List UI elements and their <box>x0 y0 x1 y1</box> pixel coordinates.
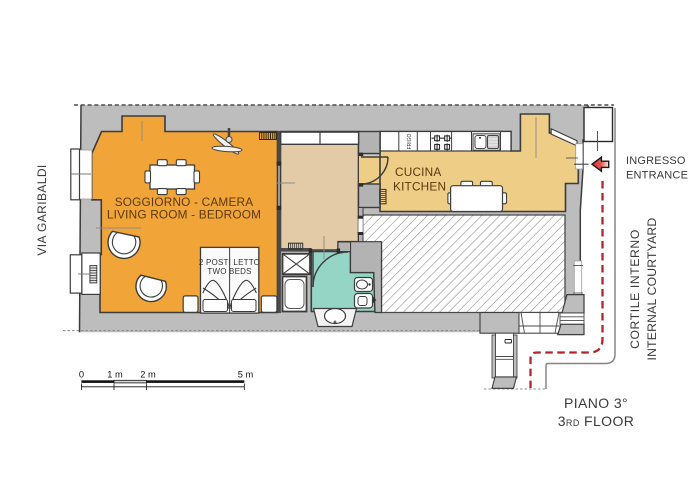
svg-text:KITCHEN: KITCHEN <box>393 180 446 194</box>
svg-text:PIANO 3°: PIANO 3° <box>564 395 628 411</box>
svg-text:1 m: 1 m <box>107 370 123 380</box>
svg-text:INTERNAL COURTYARD: INTERNAL COURTYARD <box>645 218 659 361</box>
svg-text:0: 0 <box>79 370 84 380</box>
svg-text:ENTRANCE: ENTRANCE <box>626 169 688 181</box>
svg-text:INGRESSO: INGRESSO <box>626 155 686 167</box>
svg-text:3RD FLOOR: 3RD FLOOR <box>558 413 635 429</box>
svg-text:2 POSTI LETTO: 2 POSTI LETTO <box>199 258 260 267</box>
svg-text:CORTILE INTERNO: CORTILE INTERNO <box>628 229 642 349</box>
svg-text:VIA GARIBALDI: VIA GARIBALDI <box>35 164 49 255</box>
svg-text:TWO BEDS: TWO BEDS <box>207 267 251 276</box>
svg-text:CUCINA: CUCINA <box>395 165 441 179</box>
svg-text:LIVING ROOM - BEDROOM: LIVING ROOM - BEDROOM <box>107 208 261 222</box>
svg-text:FRIGO: FRIGO <box>407 133 413 149</box>
svg-text:5 m: 5 m <box>238 370 254 380</box>
svg-text:2 m: 2 m <box>140 370 156 380</box>
